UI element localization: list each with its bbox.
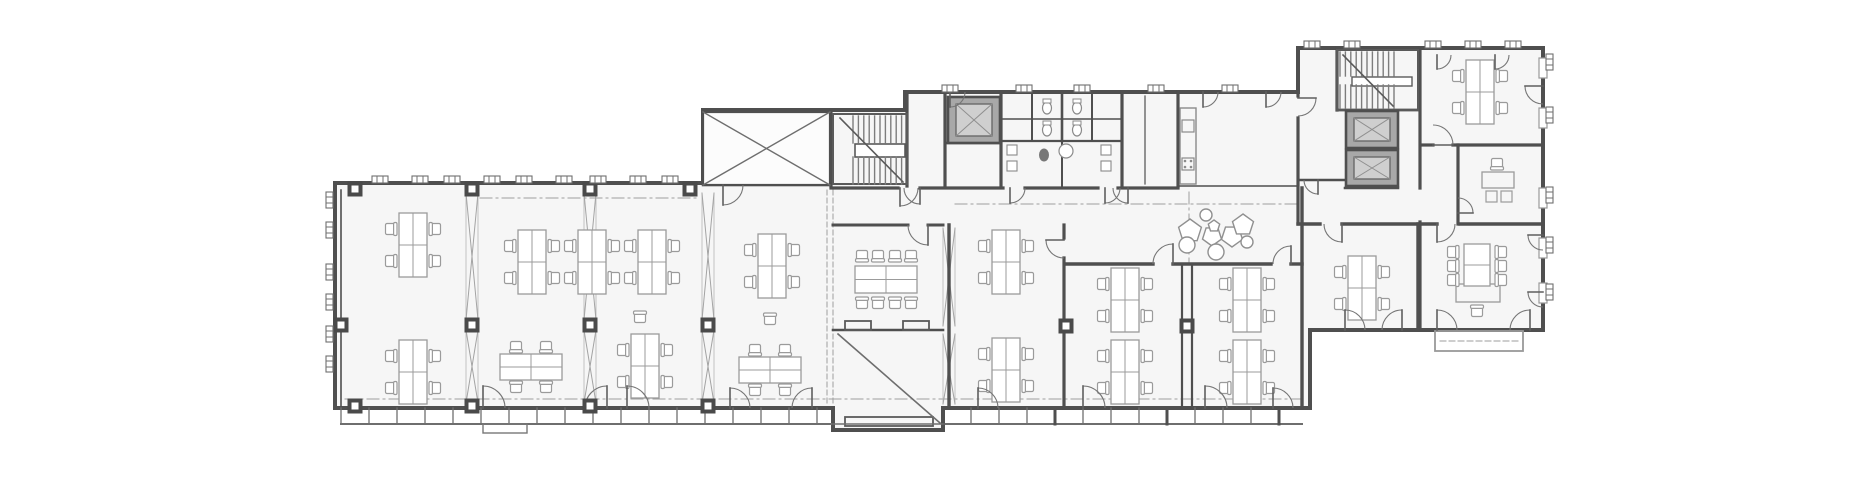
curtain-wall-band <box>341 408 1302 424</box>
floor-plan-svg <box>0 0 1872 479</box>
floor-plan-canvas <box>0 0 1872 479</box>
